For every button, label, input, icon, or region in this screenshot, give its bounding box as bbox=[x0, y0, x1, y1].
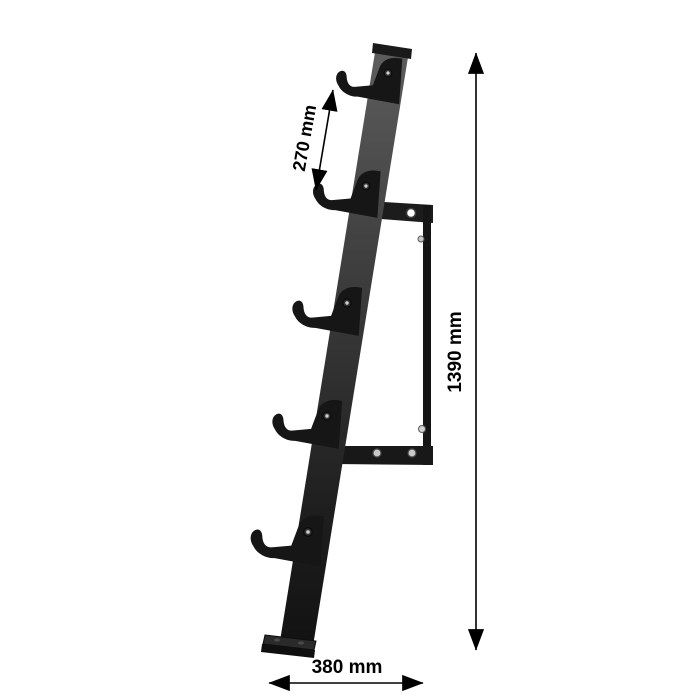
barbell-hook bbox=[271, 396, 342, 449]
barbell-hook bbox=[335, 54, 403, 104]
bracket-bolt bbox=[419, 426, 426, 433]
bracket-bolt bbox=[373, 449, 381, 457]
dimension-arrow-hook-spacing bbox=[316, 90, 333, 190]
bracket-lower-arm bbox=[335, 446, 433, 465]
dimension-label-total-height: 1390 mm bbox=[445, 311, 467, 392]
bracket-bolt bbox=[408, 449, 416, 457]
product-diagram: 270 mm 1390 mm 380 mm bbox=[0, 0, 700, 700]
bracket-bolt bbox=[418, 236, 424, 242]
barbell-hook bbox=[311, 166, 380, 218]
foot-bolt bbox=[298, 641, 304, 644]
rack-structure bbox=[249, 43, 433, 658]
barbell-hook bbox=[249, 511, 324, 567]
mounting-hole bbox=[407, 209, 416, 218]
foot-bolt bbox=[274, 638, 280, 641]
dimension-label-base-depth: 380 mm bbox=[312, 657, 383, 679]
barbell-hook bbox=[291, 283, 362, 336]
rack-illustration bbox=[0, 0, 700, 700]
